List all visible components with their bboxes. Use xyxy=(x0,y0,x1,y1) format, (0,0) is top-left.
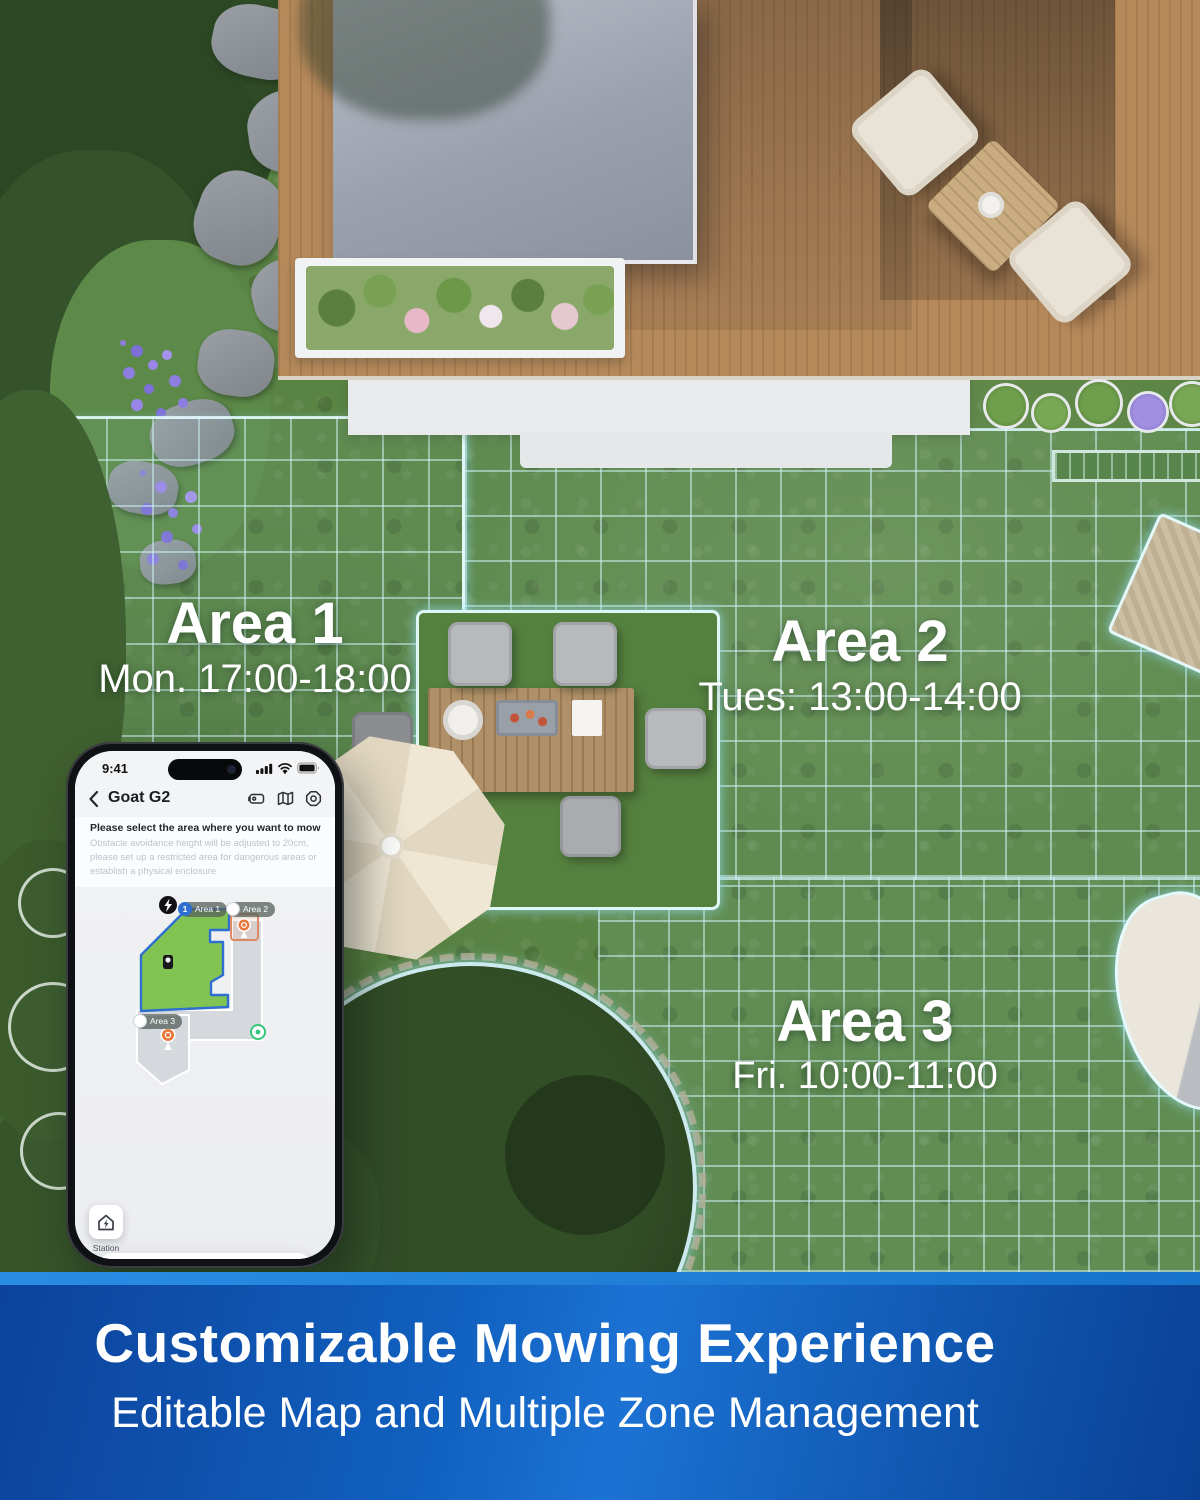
banner-title: Customizable Mowing Experience xyxy=(40,1311,1050,1375)
map-area1-polygon[interactable] xyxy=(141,909,229,1011)
purple-flowers xyxy=(120,340,126,346)
map-canvas[interactable]: 1Area 1 Area 2 Area 3 Station Enhanced 6… xyxy=(75,887,335,1259)
battery-icon xyxy=(297,762,320,774)
potted-plant xyxy=(986,386,1026,426)
signal-icon xyxy=(256,763,273,774)
zone-name: Area 2 xyxy=(690,612,1030,673)
potted-plant-purple xyxy=(1130,394,1166,430)
camera-lens xyxy=(227,765,236,774)
map-pill-area3[interactable]: Area 3 xyxy=(135,1014,182,1029)
table-tray xyxy=(443,700,483,740)
zone-schedule: Tues: 13:00-14:00 xyxy=(690,675,1030,720)
robot-marker xyxy=(163,955,173,969)
station-button[interactable] xyxy=(89,1205,123,1239)
tree-bed-inner-shrub xyxy=(505,1075,665,1235)
map-pill-label: Area 1 xyxy=(195,904,220,914)
garden-bed xyxy=(1052,450,1200,482)
map-icon[interactable] xyxy=(277,790,294,807)
page-title: Goat G2 xyxy=(108,789,170,807)
zone-name: Area 3 xyxy=(695,992,1035,1053)
table-grill xyxy=(496,700,558,736)
zone-label-area-1: Area 1 Mon. 17:00-18:00 xyxy=(90,594,420,702)
phone-screen: 9:41 Goat G2 Please select the area wher… xyxy=(75,751,335,1259)
back-icon[interactable] xyxy=(88,790,99,808)
patio-chair xyxy=(553,622,617,686)
area3-index-badge xyxy=(133,1014,147,1028)
station-icon xyxy=(96,1213,116,1232)
charging-station-marker xyxy=(159,896,177,914)
map-pill-label: Area 3 xyxy=(150,1016,175,1026)
gps-beacon-icon xyxy=(251,1025,265,1039)
area1-index-badge: 1 xyxy=(178,902,192,916)
potted-plant xyxy=(1078,382,1120,424)
patio-step xyxy=(520,432,892,468)
backyard-aerial-scene: Area 1 Mon. 17:00-18:00 Area 2 Tues: 13:… xyxy=(0,0,1200,1272)
patio-chair xyxy=(448,622,512,686)
table-plate xyxy=(978,192,1004,218)
banner-subtitle: Editable Map and Multiple Zone Managemen… xyxy=(40,1389,1050,1438)
instruction-title: Please select the area where you want to… xyxy=(90,822,321,834)
station-label: Station xyxy=(79,1243,133,1253)
marketing-banner: Customizable Mowing Experience Editable … xyxy=(0,1272,1200,1500)
map-pill-area2[interactable]: Area 2 xyxy=(228,902,275,917)
zone-name: Area 1 xyxy=(90,594,420,655)
phone: 9:41 Goat G2 Please select the area wher… xyxy=(66,742,344,1268)
dynamic-island xyxy=(168,759,242,780)
instruction-subtitle: Obstacle avoidance height will be adjust… xyxy=(90,837,321,878)
planter-flowers xyxy=(306,266,614,350)
patio-chair xyxy=(560,796,621,857)
banner-accent-strip xyxy=(0,1272,1200,1285)
mow-control-card: Enhanced 60% xyxy=(97,1253,313,1259)
nav-bar: Goat G2 xyxy=(75,785,335,815)
zone-label-area-2: Area 2 Tues: 13:00-14:00 xyxy=(690,612,1030,720)
zone-schedule: Mon. 17:00-18:00 xyxy=(90,657,420,702)
area2-index-badge xyxy=(226,902,240,916)
wifi-icon xyxy=(277,762,293,774)
map-pill-label: Area 2 xyxy=(243,904,268,914)
video-icon[interactable] xyxy=(248,790,266,807)
status-time: 9:41 xyxy=(102,761,128,776)
settings-icon[interactable] xyxy=(305,790,322,807)
instruction-block: Please select the area where you want to… xyxy=(90,822,321,878)
umbrella-pole xyxy=(378,833,404,859)
zone-schedule: Fri. 10:00-11:00 xyxy=(695,1055,1035,1098)
map-pill-area1[interactable]: 1Area 1 xyxy=(180,902,227,917)
table-cloth xyxy=(572,700,602,736)
potted-plant xyxy=(1034,396,1068,430)
zone-label-area-3: Area 3 Fri. 10:00-11:00 xyxy=(695,992,1035,1098)
